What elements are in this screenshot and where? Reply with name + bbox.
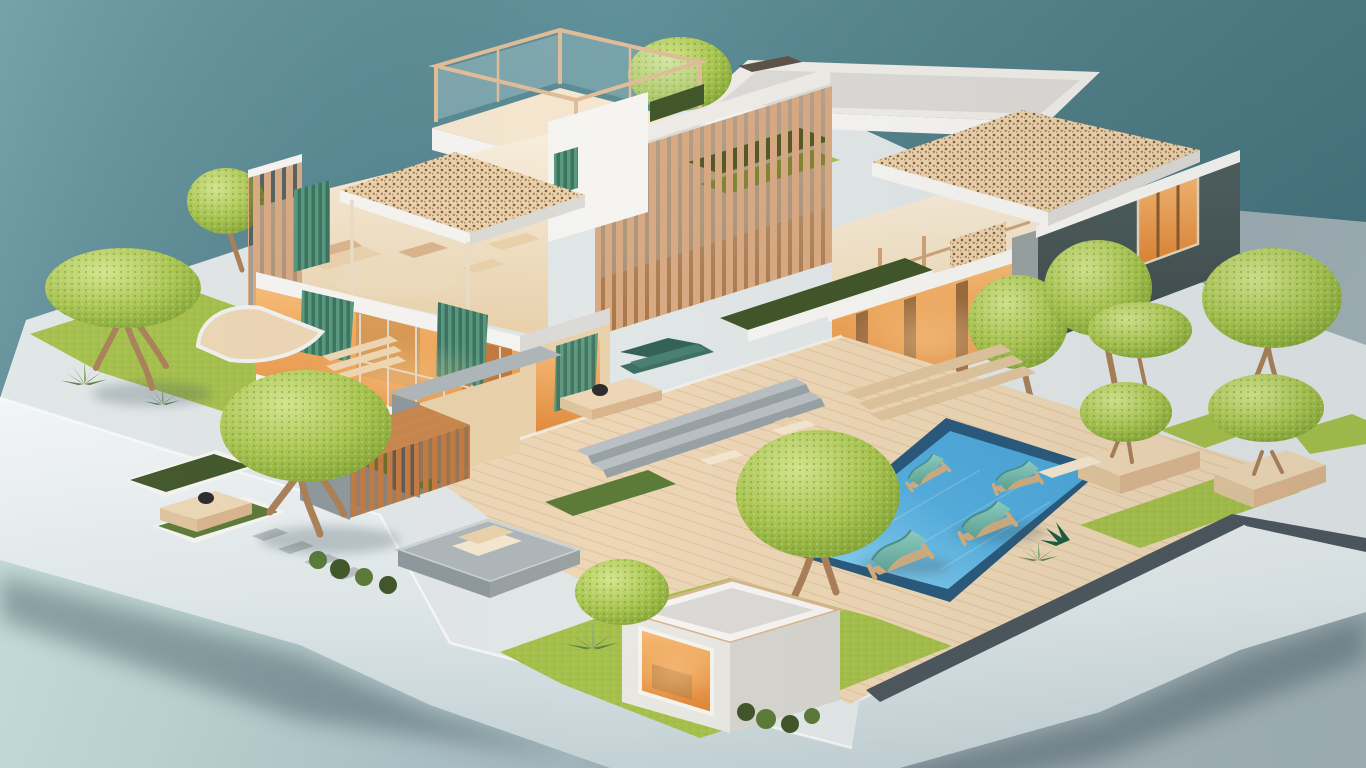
vignette [0,0,1366,768]
render-stage [0,0,1366,768]
villa-render [0,0,1366,768]
